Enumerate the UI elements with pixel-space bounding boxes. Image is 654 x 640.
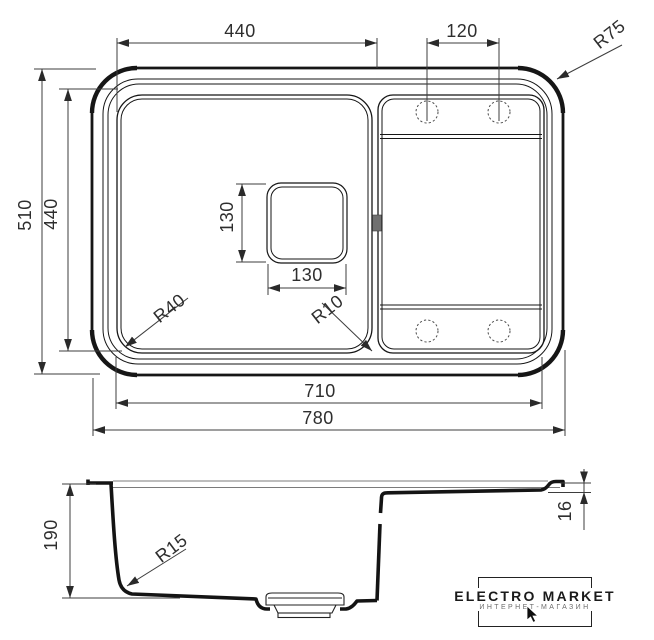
brand-name: ELECTRO MARKET bbox=[450, 588, 619, 604]
drain-square-inner bbox=[271, 187, 343, 259]
dim-label-bowl-depth: 440 bbox=[41, 198, 61, 230]
dim-label-drain-square-width: 130 bbox=[291, 265, 323, 285]
drain-square-outline bbox=[267, 183, 347, 263]
bowl-left-wall-and-bottom bbox=[111, 484, 270, 609]
drain-flange bbox=[266, 593, 344, 605]
dim-label-hole-spacing: 120 bbox=[446, 21, 478, 41]
dim-label-section-bowl-depth: 190 bbox=[41, 519, 61, 551]
cursor-icon bbox=[526, 606, 540, 624]
faucet-holes bbox=[416, 101, 510, 342]
technical-drawing: 440 120 R75 510 440 130 130 R40 R10 710 … bbox=[0, 0, 654, 640]
drainer-outline bbox=[378, 95, 544, 353]
drain-fitting bbox=[266, 593, 344, 618]
dim-label-drainer-ledge-depth: 16 bbox=[555, 500, 575, 521]
sink-outer-edge bbox=[92, 68, 563, 375]
dim-label-outer-corner-radius: R75 bbox=[590, 16, 630, 53]
dim-label-drain-square-height: 130 bbox=[217, 201, 237, 233]
bowl-right-wall-upper-and-drainer bbox=[381, 482, 564, 514]
dim-label-overall-length: 780 bbox=[302, 408, 334, 428]
dim-label-bowl-corner-radius: R40 bbox=[150, 290, 190, 327]
faucet-hole bbox=[488, 320, 510, 342]
leader-R75 bbox=[557, 45, 622, 79]
dim-label-bowl-width-top: 440 bbox=[224, 21, 256, 41]
drainer-inner-outline bbox=[382, 99, 540, 349]
outer-corner-arcs bbox=[92, 68, 563, 375]
section-view-dim-labels: 190 R15 16 bbox=[41, 500, 575, 566]
bowl-bottom-right bbox=[340, 601, 377, 610]
drain-body bbox=[274, 605, 336, 613]
bowl-right-wall-lower bbox=[377, 524, 380, 601]
dim-label-drain-corner-radius: R10 bbox=[308, 291, 348, 328]
dim-label-overall-depth: 510 bbox=[15, 199, 35, 231]
overflow-slot bbox=[373, 215, 382, 231]
dim-label-inner-length: 710 bbox=[304, 381, 336, 401]
dim-label-bottom-corner-radius: R15 bbox=[152, 530, 192, 567]
faucet-hole bbox=[416, 320, 438, 342]
drain-nut bbox=[278, 613, 330, 618]
top-view bbox=[92, 68, 563, 375]
